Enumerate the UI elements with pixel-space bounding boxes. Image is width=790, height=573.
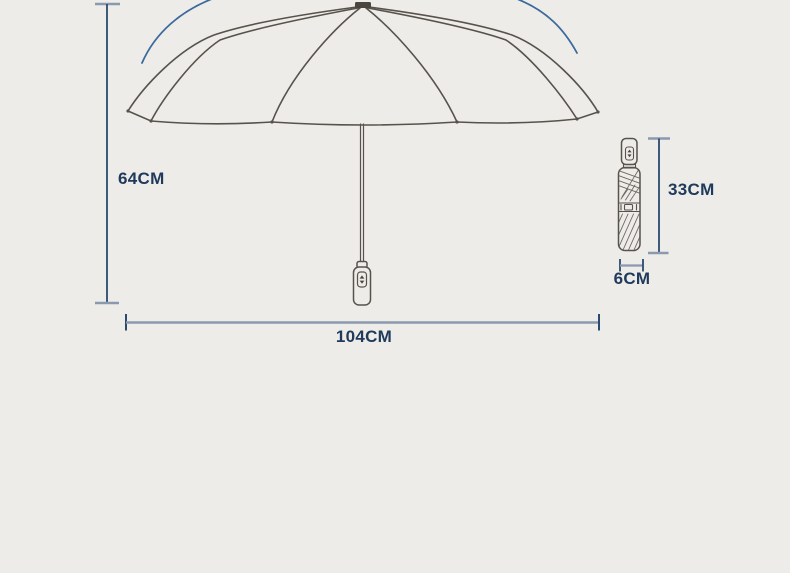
open-height-dimension-line bbox=[95, 4, 120, 303]
folded-button-icon bbox=[626, 147, 634, 160]
folded-umbrella-illustration bbox=[601, 139, 650, 251]
open-width-label: 104CM bbox=[336, 327, 392, 347]
canopy-motion-arc-icon bbox=[142, 0, 577, 63]
open-umbrella-illustration bbox=[126, 0, 599, 305]
top-cap bbox=[355, 2, 371, 8]
rib-tip-joints bbox=[126, 109, 599, 123]
shaft bbox=[361, 124, 364, 262]
folded-height-label: 33CM bbox=[668, 180, 715, 200]
open-height-label: 64CM bbox=[118, 169, 165, 189]
umbrella-size-diagram: 64CM 104CM 33CM 6CM bbox=[0, 0, 790, 573]
diagram-canvas bbox=[0, 0, 790, 573]
folded-width-label: 6CM bbox=[614, 269, 651, 289]
folded-height-dimension-line bbox=[648, 139, 670, 254]
folded-strap-band bbox=[619, 203, 641, 212]
